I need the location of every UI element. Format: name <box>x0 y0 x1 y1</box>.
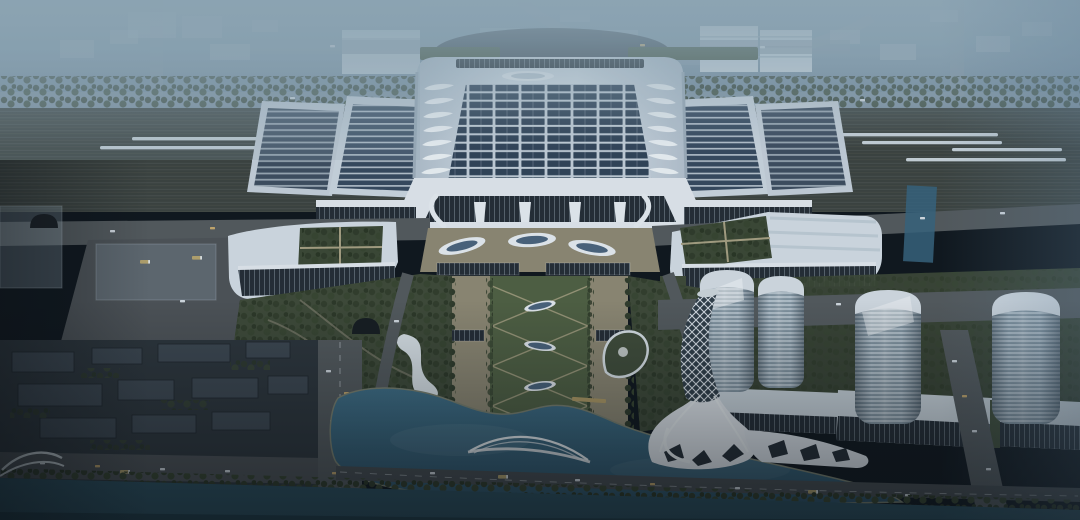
left-vignette <box>0 160 150 520</box>
aerial-render-image <box>0 0 1080 520</box>
scene-render <box>0 0 1080 520</box>
atmosphere <box>0 0 1080 520</box>
bottom-vignette <box>0 300 1080 520</box>
